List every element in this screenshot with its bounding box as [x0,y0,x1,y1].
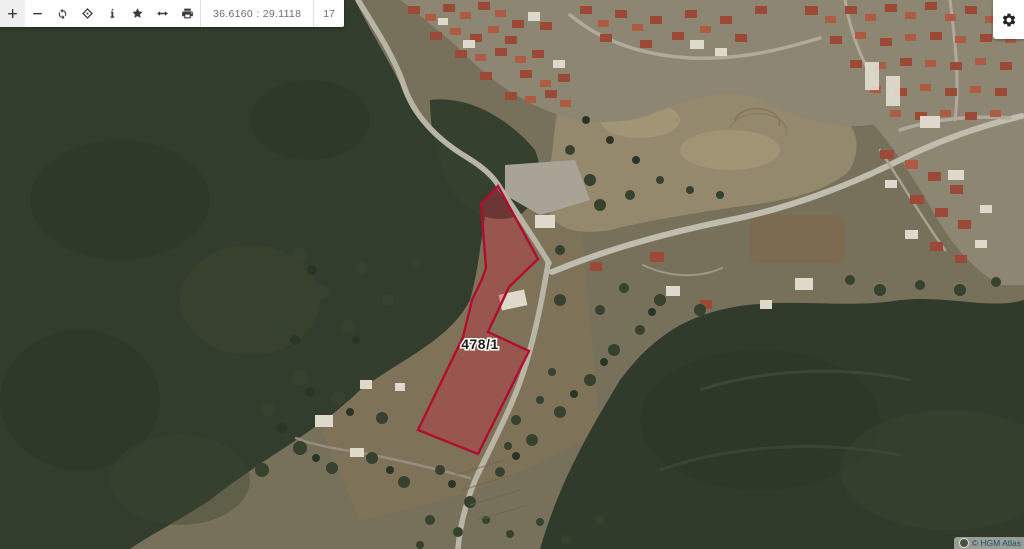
info-button[interactable] [100,0,125,27]
map-toolbar: 36.6160 : 29.1118 17 [0,0,344,27]
refresh-icon [56,7,69,20]
map-viewport[interactable]: 478/1 [0,0,1024,549]
map-application: 478/1 36.6160 : 29.1118 17 [0,0,1024,549]
print-button[interactable] [175,0,200,27]
info-icon [106,7,119,20]
map-attribution: © HGM Atlas [954,537,1024,549]
satellite-imagery: 478/1 [0,0,1024,549]
zoom-level-readout: 17 [313,0,344,27]
center-locate-button[interactable] [75,0,100,27]
attribution-link[interactable]: © HGM Atlas [972,538,1021,548]
minus-icon [31,7,44,20]
settings-button[interactable] [993,0,1024,39]
refresh-button[interactable] [50,0,75,27]
parcel-label: 478/1 [461,336,499,352]
double-arrow-icon [156,7,169,20]
plus-icon [6,7,19,20]
zoom-out-button[interactable] [25,0,50,27]
gear-icon [1001,12,1017,28]
crosshair-icon [81,7,94,20]
coordinates-readout: 36.6160 : 29.1118 [200,0,313,27]
globe-icon [959,538,969,548]
printer-icon [181,7,194,20]
favorites-button[interactable] [125,0,150,27]
star-icon [131,7,144,20]
zoom-in-button[interactable] [0,0,25,27]
measure-button[interactable] [150,0,175,27]
